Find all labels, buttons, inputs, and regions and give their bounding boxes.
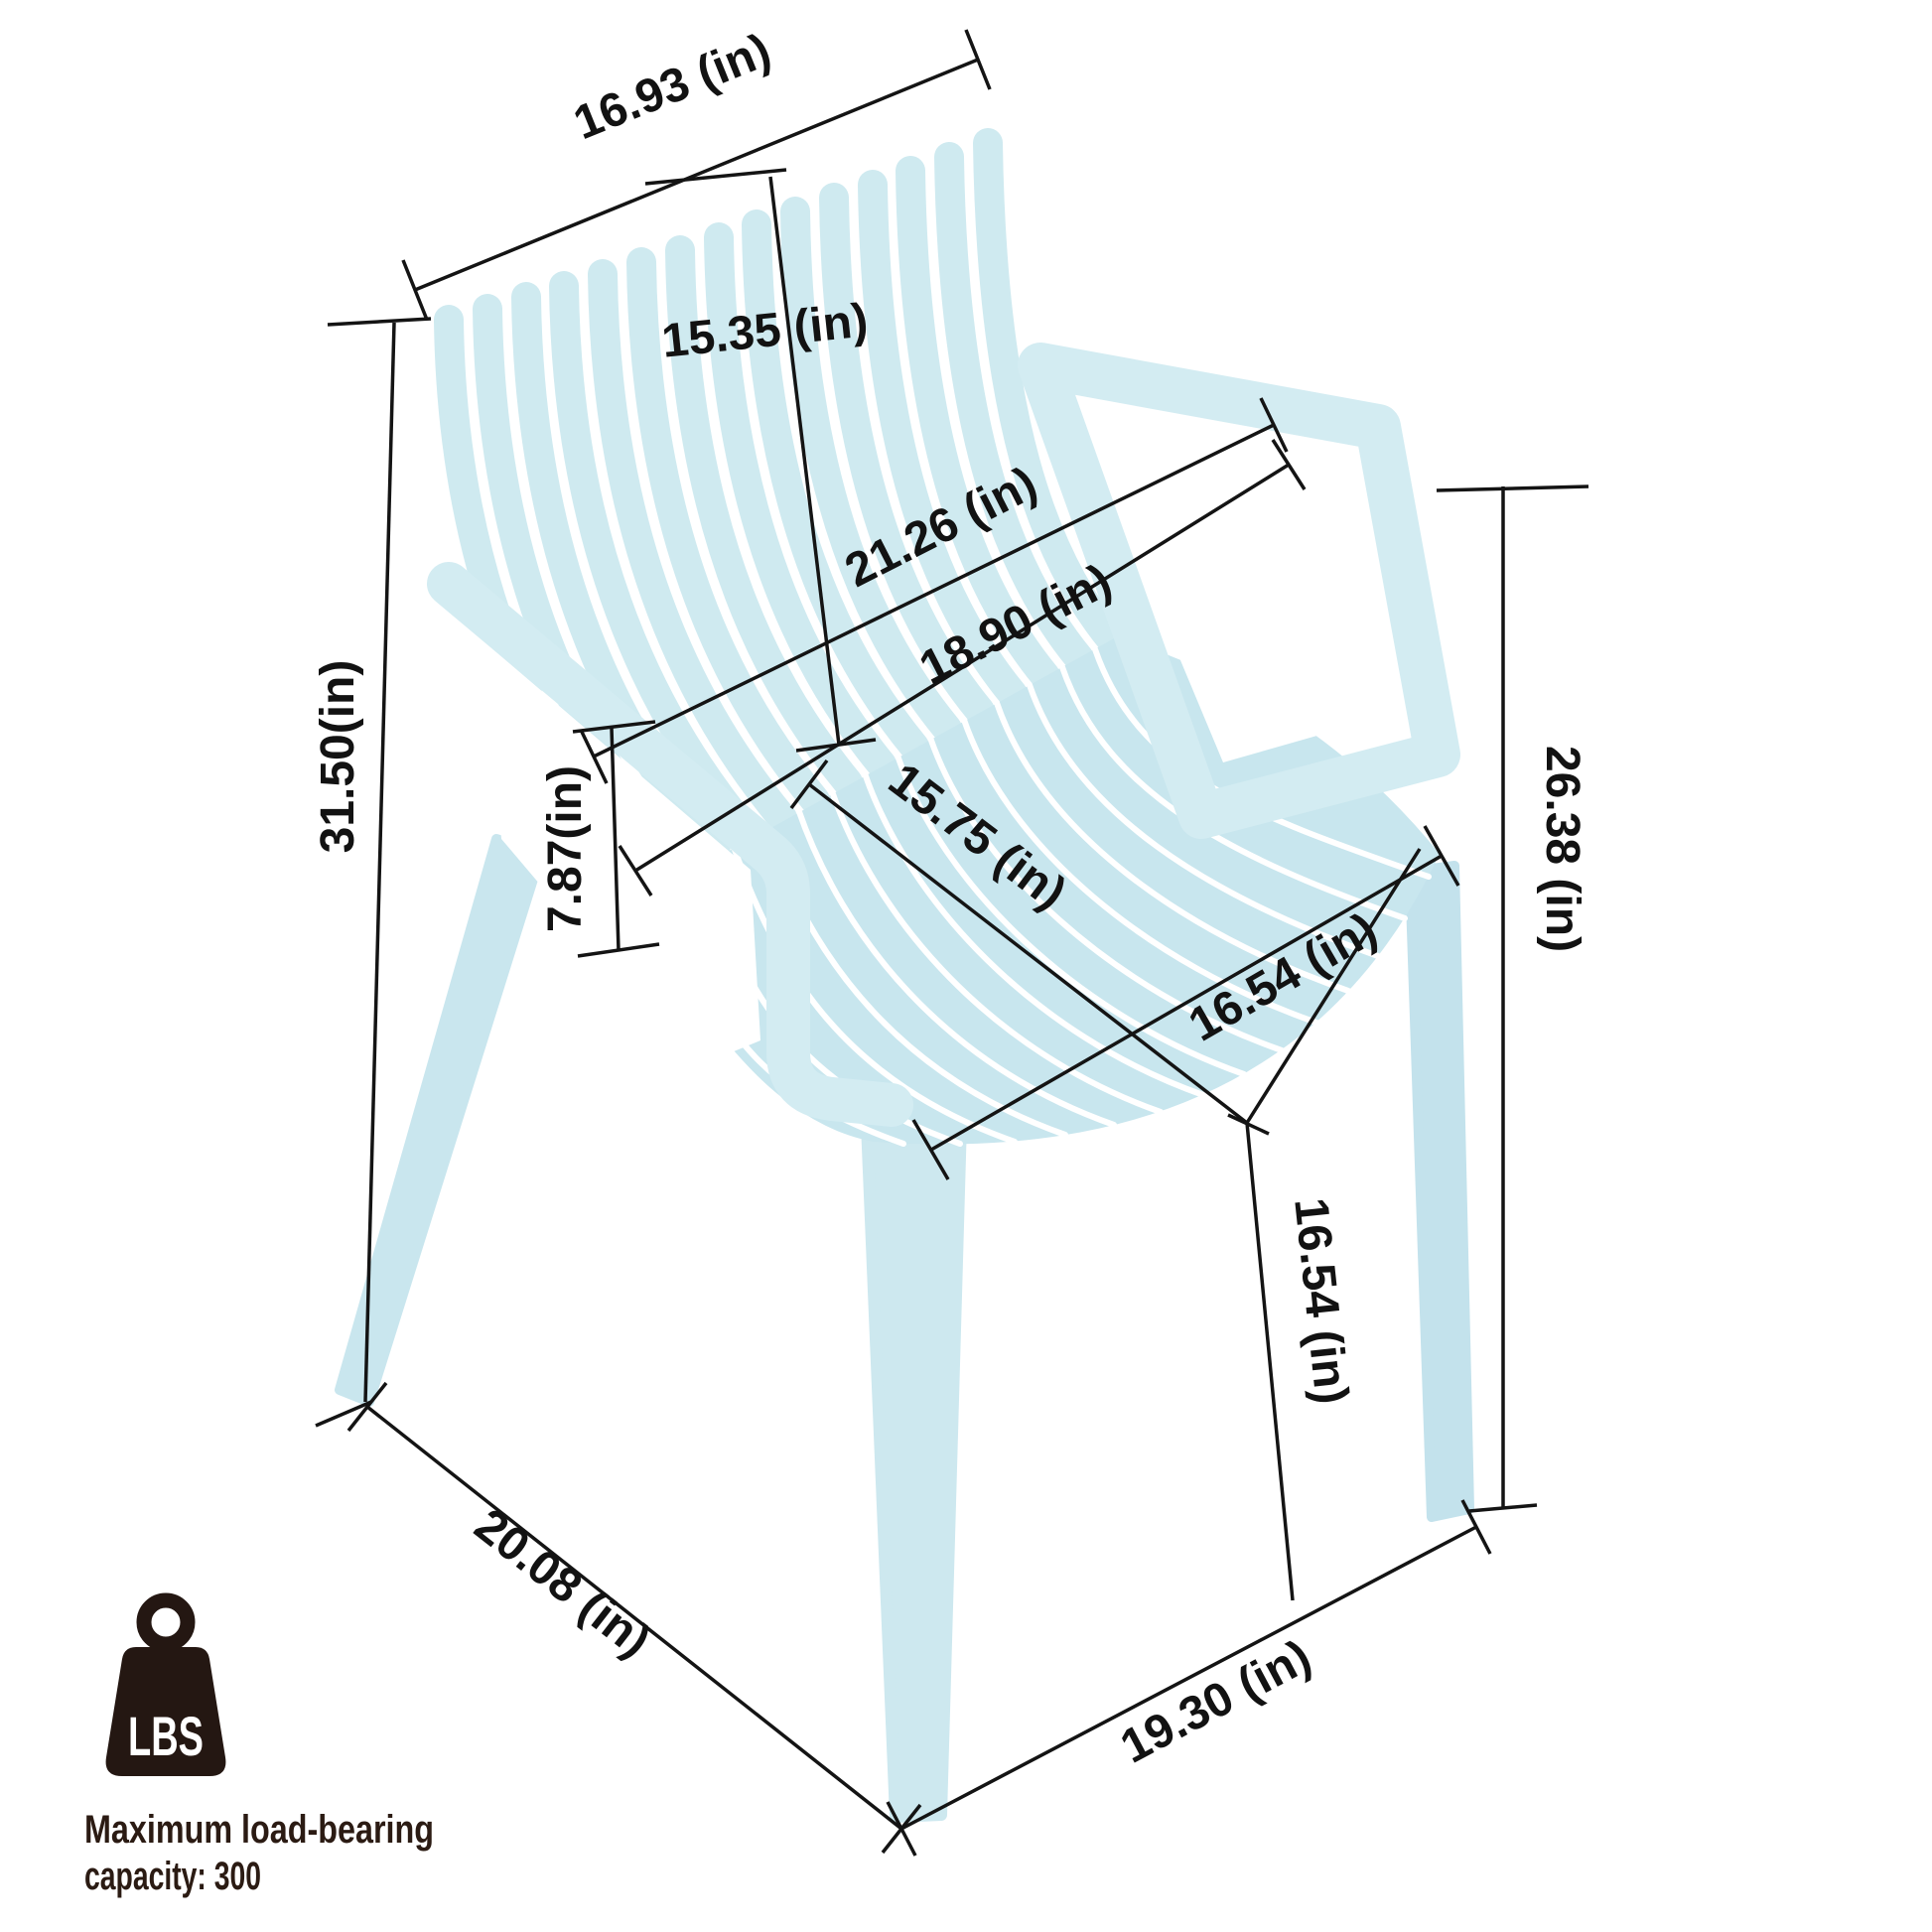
lbs-label: LBS	[128, 1705, 204, 1767]
dimension-line	[901, 1527, 1476, 1829]
dimension-label: 26.38 (in)	[1536, 746, 1588, 952]
dimension-label: 7.87(in)	[539, 765, 592, 932]
load-caption-line2: capacity: 300	[84, 1855, 261, 1898]
dimension-label: 16.54 (in)	[1284, 1195, 1357, 1406]
load-capacity-badge: LBS Maximum load-bearing capacity: 300	[84, 1600, 434, 1898]
chair-leg-back-left	[340, 839, 541, 1402]
dimension-label: 31.50(in)	[312, 660, 364, 854]
chair-dimension-diagram: 16.93 (in) 15.35 (in) 21.26 (in) 18.90 (…	[0, 0, 1932, 1932]
chair-leg-front	[866, 1100, 961, 1817]
dimension-tick	[966, 30, 990, 89]
dimension-tick	[328, 319, 431, 325]
weight-lbs-icon: LBS	[106, 1600, 226, 1776]
dimension-label: 20.08 (in)	[465, 1499, 660, 1668]
dimension-label: 16.93 (in)	[567, 24, 778, 150]
dimension-base-depth: 20.08 (in)	[348, 1383, 920, 1853]
dimension-tick	[1437, 486, 1588, 490]
dimension-tick	[403, 260, 427, 320]
dimension-base-width: 19.30 (in)	[888, 1500, 1490, 1856]
dimension-tick	[645, 170, 786, 184]
chair-leg-right	[1410, 866, 1469, 1517]
load-caption-line1: Maximum load-bearing	[84, 1808, 434, 1852]
weight-handle	[144, 1600, 188, 1644]
